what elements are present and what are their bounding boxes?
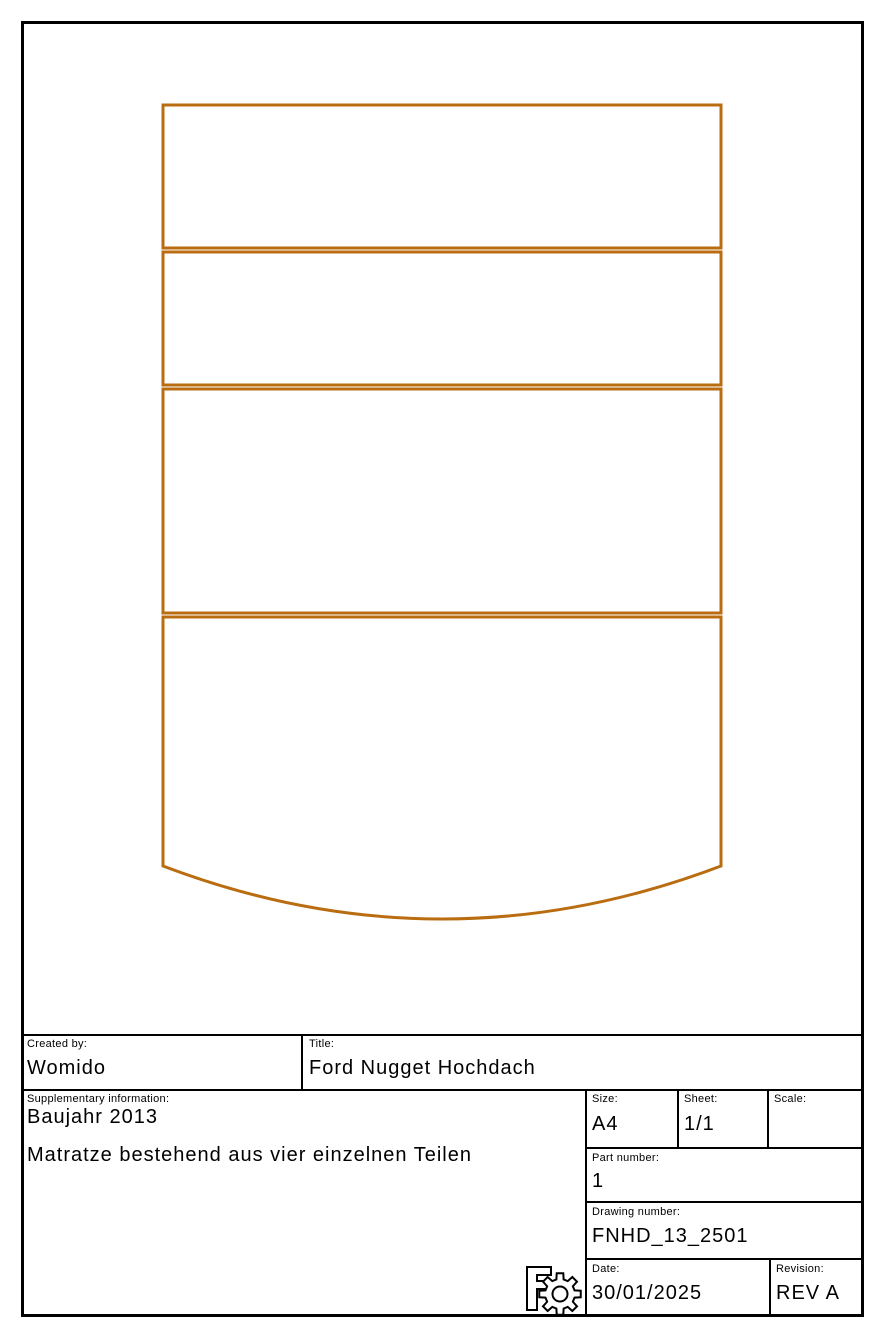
- mattress-panel-2: [163, 252, 721, 385]
- sheet-scale-divider: [767, 1089, 769, 1149]
- titleblock-top-line: [21, 1034, 864, 1036]
- size-label: Size:: [592, 1093, 618, 1105]
- mattress-panel-1: [163, 105, 721, 248]
- revision-value: REV A: [776, 1282, 840, 1305]
- drawingnumber-row-bottom-line: [585, 1258, 864, 1260]
- scale-label: Scale:: [774, 1093, 806, 1105]
- supplementary-line2: Matratze bestehend aus vier einzelnen Te…: [27, 1144, 472, 1167]
- mattress-drawing: [160, 102, 724, 924]
- created-by-value: Womido: [27, 1057, 106, 1080]
- logo-gear-hole: [553, 1287, 568, 1302]
- part-number-label: Part number:: [592, 1152, 659, 1164]
- supplementary-line1: Baujahr 2013: [27, 1106, 158, 1129]
- supplementary-label: Supplementary information:: [27, 1093, 169, 1105]
- sheet-value: 1/1: [684, 1113, 715, 1136]
- title-value: Ford Nugget Hochdach: [309, 1057, 536, 1080]
- supplementary-right-divider: [585, 1089, 587, 1317]
- part-number-value: 1: [592, 1170, 604, 1193]
- partnumber-row-bottom-line: [585, 1201, 864, 1203]
- size-row-bottom-line: [585, 1147, 864, 1149]
- sheet-label: Sheet:: [684, 1093, 718, 1105]
- drawing-number-label: Drawing number:: [592, 1206, 680, 1218]
- titleblock-row1-bottom-line: [21, 1089, 864, 1091]
- date-label: Date:: [592, 1263, 620, 1275]
- freecad-gear-icon: [523, 1261, 585, 1321]
- created-by-label: Created by:: [27, 1038, 87, 1050]
- date-revision-divider: [769, 1258, 771, 1317]
- date-value: 30/01/2025: [592, 1282, 702, 1305]
- drawing-number-value: FNHD_13_2501: [592, 1225, 749, 1248]
- mattress-panel-4: [163, 617, 721, 919]
- createdby-title-divider: [301, 1034, 303, 1091]
- title-label: Title:: [309, 1038, 334, 1050]
- mattress-panel-3: [163, 389, 721, 613]
- size-sheet-divider: [677, 1089, 679, 1149]
- revision-label: Revision:: [776, 1263, 824, 1275]
- size-value: A4: [592, 1113, 618, 1136]
